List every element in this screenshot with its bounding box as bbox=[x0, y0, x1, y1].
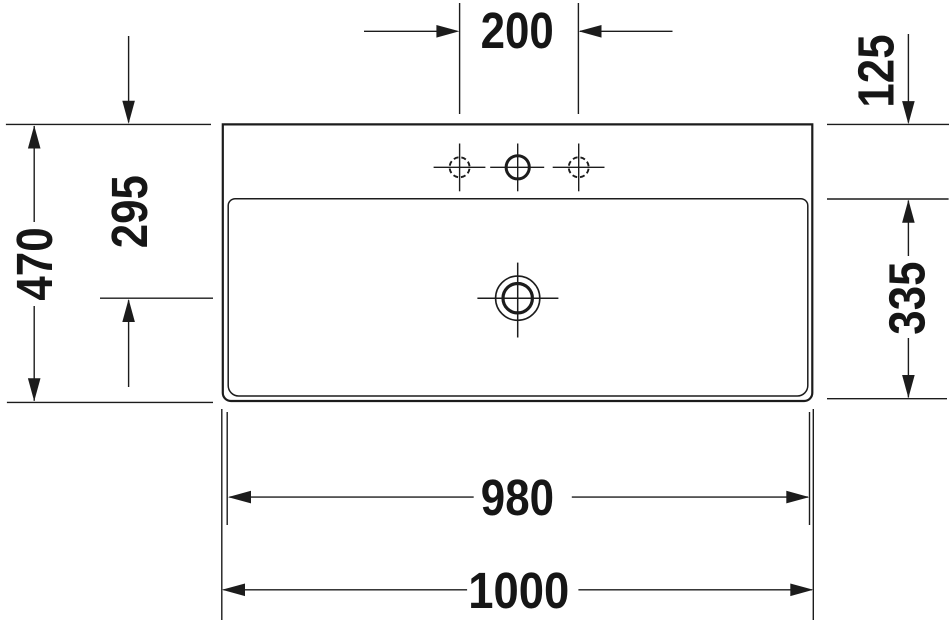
svg-text:980: 980 bbox=[481, 469, 554, 526]
svg-text:335: 335 bbox=[879, 262, 936, 335]
svg-text:1000: 1000 bbox=[468, 562, 569, 619]
svg-text:295: 295 bbox=[101, 175, 158, 248]
svg-text:125: 125 bbox=[848, 34, 905, 107]
svg-text:470: 470 bbox=[6, 227, 63, 300]
svg-text:200: 200 bbox=[481, 2, 554, 59]
